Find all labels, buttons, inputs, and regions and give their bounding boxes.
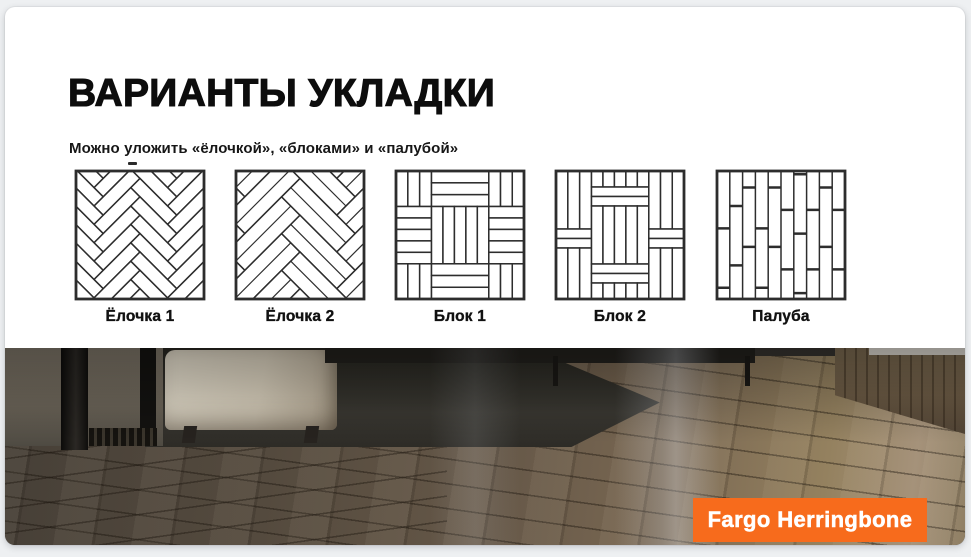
herringbone-1-diagram xyxy=(74,169,206,301)
pattern-herringbone-1: Ёлочка 1 xyxy=(74,169,206,326)
pattern-herringbone-2: Ёлочка 2 xyxy=(234,169,366,326)
pattern-label: Палуба xyxy=(715,308,847,326)
interior-floor-photo: Fargo Herringbone xyxy=(5,348,965,545)
pattern-label: Ёлочка 1 xyxy=(74,308,206,326)
page: { "page_background": "#eef0f2", "slide":… xyxy=(0,0,971,557)
stray-dash-mark xyxy=(128,162,137,165)
slide-card: ВАРИАНТЫ УКЛАДКИ Можно уложить «ёлочкой»… xyxy=(5,7,965,545)
herringbone-2-diagram xyxy=(234,169,366,301)
pattern-label: Блок 1 xyxy=(394,308,526,326)
slide-subtitle: Можно уложить «ёлочкой», «блоками» и «па… xyxy=(69,140,458,157)
pattern-block-2: Блок 2 xyxy=(554,169,686,326)
product-badge-label: Fargo Herringbone xyxy=(708,507,913,533)
block-2-diagram xyxy=(554,169,686,301)
slide-title: ВАРИАНТЫ УКЛАДКИ xyxy=(68,73,495,116)
pattern-label: Блок 2 xyxy=(554,308,686,326)
pattern-label: Ёлочка 2 xyxy=(234,308,366,326)
pattern-block-1: Блок 1 xyxy=(394,169,526,326)
pattern-deck: Палуба xyxy=(715,169,847,326)
block-1-diagram xyxy=(394,169,526,301)
product-badge: Fargo Herringbone xyxy=(693,498,927,542)
deck-diagram xyxy=(715,169,847,301)
